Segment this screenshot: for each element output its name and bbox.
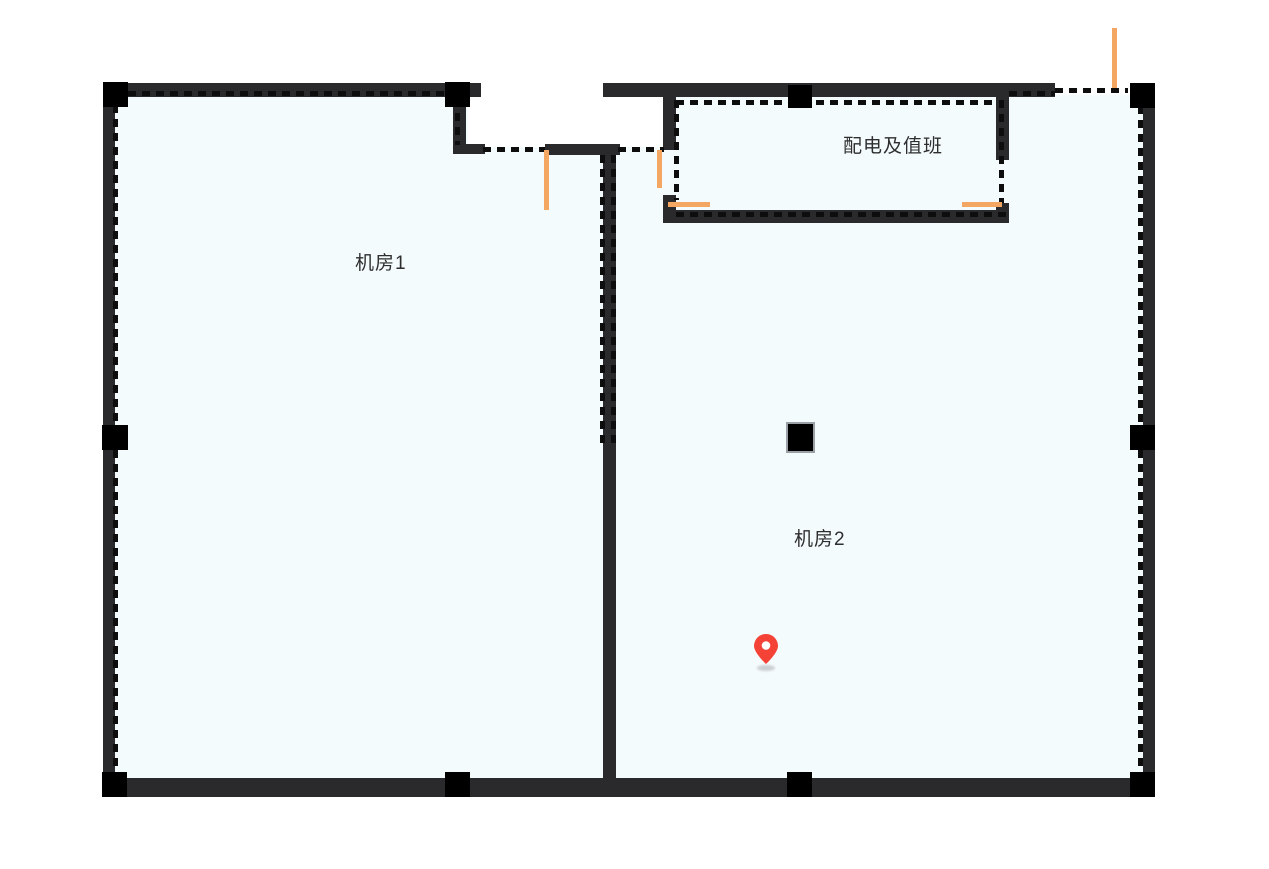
wall-dashed-line: [600, 155, 605, 445]
wall-dashed-line: [113, 105, 118, 425]
column: [102, 772, 127, 797]
wall-dashed-line: [128, 91, 448, 96]
column: [103, 82, 128, 107]
floor-plan-canvas: 机房1 机房2 配电及值班: [0, 0, 1269, 869]
location-pin-icon[interactable]: [754, 634, 778, 664]
wall-bottom: [103, 778, 1155, 797]
wall-dashed-line: [676, 212, 1006, 217]
door-marker: [1112, 28, 1117, 88]
wall-dashed-line: [1009, 91, 1055, 96]
wall-dashed-line: [113, 450, 118, 773]
door-marker: [544, 150, 549, 210]
door-marker: [962, 202, 1002, 207]
column: [1130, 83, 1155, 108]
door-opening-dashed-line: [1055, 88, 1128, 93]
column: [1130, 772, 1155, 797]
wall-dashed-line: [1138, 450, 1143, 773]
room-label-peidian-zhiban: 配电及值班: [843, 131, 943, 158]
floor-area: [110, 95, 1146, 781]
door-opening-dashed-line: [999, 100, 1004, 203]
wall-top-right: [603, 83, 1055, 97]
column: [445, 82, 470, 107]
column: [445, 772, 470, 797]
door-opening-dashed-line: [483, 147, 545, 152]
wall-dashed-line: [611, 155, 616, 445]
free-standing-column: [786, 422, 815, 453]
room-label-jifang-1: 机房1: [355, 248, 407, 275]
door-marker: [657, 150, 662, 188]
wall-notch-foot: [453, 144, 485, 154]
outside-notch-area: [468, 95, 664, 147]
pin-shadow: [757, 665, 775, 671]
column: [787, 772, 812, 797]
room-label-jifang-2: 机房2: [794, 524, 846, 551]
door-opening-dashed-line: [674, 100, 679, 200]
column: [102, 425, 128, 450]
wall-dashed-line: [676, 100, 996, 105]
wall-dashed-line: [1138, 106, 1143, 425]
column: [788, 85, 812, 108]
column: [1130, 425, 1155, 450]
door-marker: [668, 202, 710, 207]
